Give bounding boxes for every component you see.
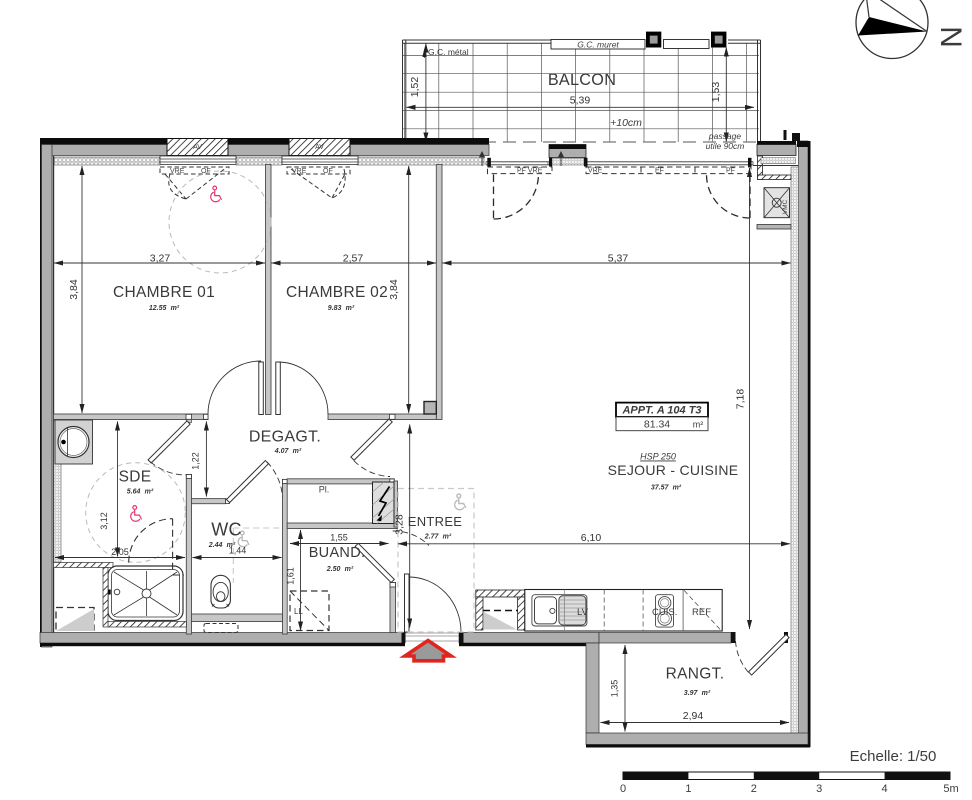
svg-text:G.C. muret: G.C. muret <box>577 39 619 49</box>
svg-text:CUIS.: CUIS. <box>652 607 677 618</box>
svg-text:passage: passage <box>708 131 741 141</box>
svg-text:m²: m² <box>693 420 704 430</box>
svg-text:OF: OF <box>201 168 211 175</box>
svg-text:2.44 m²: 2.44 m² <box>208 542 236 549</box>
svg-text:3: 3 <box>816 783 822 795</box>
svg-text:utile 90cm: utile 90cm <box>706 141 745 151</box>
svg-text:CHAMBRE 02: CHAMBRE 02 <box>286 284 388 301</box>
svg-text:3,84: 3,84 <box>388 279 400 300</box>
svg-text:2: 2 <box>751 783 757 795</box>
svg-text:3,28: 3,28 <box>394 514 406 535</box>
svg-text:5,37: 5,37 <box>608 253 629 265</box>
svg-text:VRE: VRE <box>170 168 185 175</box>
svg-text:G.C. métal: G.C. métal <box>428 47 469 57</box>
svg-text:1: 1 <box>685 783 691 795</box>
svg-text:WC: WC <box>211 520 242 540</box>
svg-text:3,84: 3,84 <box>68 279 80 300</box>
svg-text:6,10: 6,10 <box>581 532 602 544</box>
svg-text:3.97 m²: 3.97 m² <box>684 690 711 697</box>
svg-text:2,57: 2,57 <box>343 253 364 265</box>
svg-text:3,12: 3,12 <box>99 512 109 530</box>
svg-text:VMC: VMC <box>782 199 789 214</box>
svg-text:3,27: 3,27 <box>150 253 171 265</box>
svg-text:OF: OF <box>323 168 333 175</box>
svg-text:APPT. A 104 T3: APPT. A 104 T3 <box>621 405 701 417</box>
svg-text:BALCON: BALCON <box>548 71 616 89</box>
svg-text:0: 0 <box>620 783 626 795</box>
svg-text:LV: LV <box>577 607 589 618</box>
svg-text:1,61: 1,61 <box>286 567 296 585</box>
svg-text:1,35: 1,35 <box>610 680 620 698</box>
svg-text:12.55 m²: 12.55 m² <box>149 305 180 312</box>
svg-text:PF VRE: PF VRE <box>517 168 543 175</box>
svg-text:9.83 m²: 9.83 m² <box>328 305 355 312</box>
svg-text:RANGT.: RANGT. <box>666 666 725 683</box>
svg-text:4: 4 <box>882 783 888 795</box>
svg-text:VRE: VRE <box>588 168 603 175</box>
svg-text:2,94: 2,94 <box>683 710 704 722</box>
svg-text:4.07 m²: 4.07 m² <box>274 448 302 455</box>
svg-text:Pl.: Pl. <box>319 485 330 495</box>
svg-text:+10cm: +10cm <box>610 117 642 129</box>
svg-text:LL: LL <box>294 607 303 616</box>
svg-text:ENTREE: ENTREE <box>408 514 463 529</box>
svg-text:N: N <box>934 26 967 48</box>
svg-text:VRE: VRE <box>292 168 307 175</box>
svg-text:2.50 m²: 2.50 m² <box>326 566 354 573</box>
svg-text:PF: PF <box>726 168 735 175</box>
svg-text:SEJOUR - CUISINE: SEJOUR - CUISINE <box>608 462 739 478</box>
svg-text:REF: REF <box>692 607 711 618</box>
svg-text:AV: AV <box>315 144 324 151</box>
svg-text:1,52: 1,52 <box>409 77 421 98</box>
svg-text:5,39: 5,39 <box>570 95 591 107</box>
svg-text:Echelle: 1/50: Echelle: 1/50 <box>850 748 937 765</box>
svg-text:1,55: 1,55 <box>330 533 348 543</box>
svg-text:1,22: 1,22 <box>191 452 201 470</box>
svg-text:7,18: 7,18 <box>735 389 747 410</box>
svg-text:EF: EF <box>655 168 664 175</box>
svg-text:2,05: 2,05 <box>111 547 129 557</box>
svg-text:CHAMBRE 01: CHAMBRE 01 <box>113 284 215 301</box>
svg-text:BUAND.: BUAND. <box>309 545 366 561</box>
svg-text:AV: AV <box>193 144 202 151</box>
svg-text:1,53: 1,53 <box>710 82 722 103</box>
svg-text:SDE: SDE <box>119 469 152 486</box>
svg-text:5m: 5m <box>943 783 958 795</box>
svg-text:DEGAGT.: DEGAGT. <box>249 429 321 446</box>
svg-text:37.57 m²: 37.57 m² <box>651 485 682 492</box>
svg-text:2.77 m²: 2.77 m² <box>424 534 452 541</box>
svg-text:5.64 m²: 5.64 m² <box>127 489 154 496</box>
svg-text:81.34: 81.34 <box>644 419 670 431</box>
svg-text:HSP 250: HSP 250 <box>640 452 676 462</box>
